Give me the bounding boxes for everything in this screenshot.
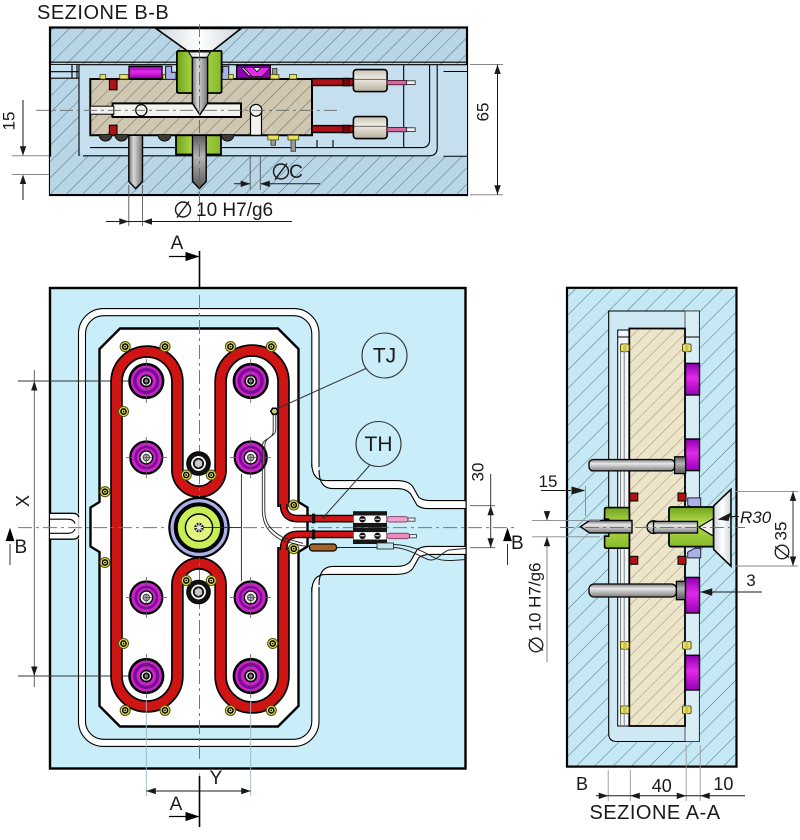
svg-text:A: A [171,233,184,254]
svg-text:15: 15 [539,472,558,491]
svg-text:30: 30 [468,463,487,482]
svg-text:SEZIONE B-B: SEZIONE B-B [37,2,169,24]
svg-text:B: B [15,537,28,558]
svg-text:A: A [170,794,183,815]
svg-text:10 H7/g6: 10 H7/g6 [196,200,273,221]
svg-text:10 H7/g6: 10 H7/g6 [525,563,544,632]
svg-text:65: 65 [473,103,492,122]
svg-text:40: 40 [652,776,672,796]
svg-text:10: 10 [713,774,733,794]
svg-text:X: X [13,495,33,507]
svg-text:3: 3 [746,571,755,590]
svg-text:SEZIONE A-A: SEZIONE A-A [589,802,720,824]
svg-text:15: 15 [0,112,18,131]
svg-text:TJ: TJ [373,345,396,368]
svg-text:B: B [511,533,524,554]
svg-text:Y: Y [210,768,223,789]
svg-text:TH: TH [365,433,393,456]
svg-text:35: 35 [771,522,790,541]
svg-text:C: C [289,162,303,183]
svg-text:B: B [576,774,588,794]
svg-text:R30: R30 [740,508,772,527]
